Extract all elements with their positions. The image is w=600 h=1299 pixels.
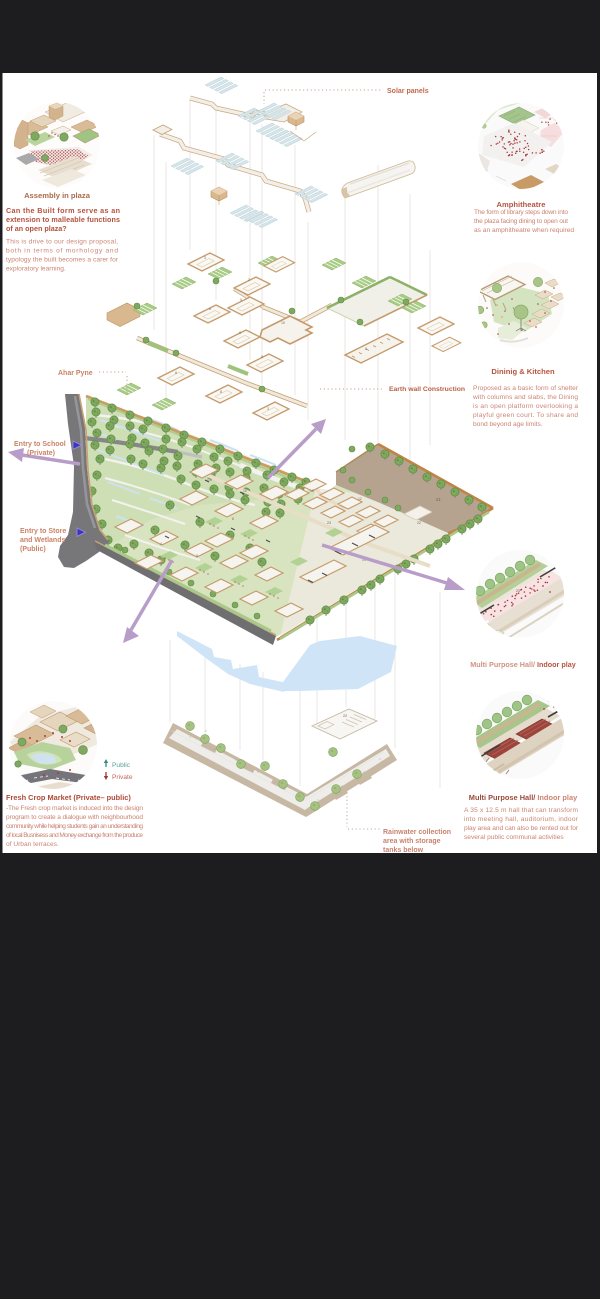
svg-text:3: 3 <box>267 407 269 411</box>
svg-text:Solar panels: Solar panels <box>387 88 429 95</box>
svg-text:8: 8 <box>365 347 367 351</box>
svg-text:Entry to Store: Entry to Store <box>20 528 66 535</box>
svg-text:(Private): (Private) <box>27 450 55 457</box>
svg-text:8: 8 <box>220 390 222 394</box>
svg-text:Assembly in plaza: Assembly in plaza <box>24 191 91 200</box>
svg-text:23: 23 <box>327 521 331 525</box>
svg-text:Entry to School: Entry to School <box>14 441 66 448</box>
svg-text:Can the Built form serve as an: Can the Built form serve as an <box>6 206 120 215</box>
svg-text:of local Busnisess and Money e: of local Busnisess and Money exchange fr… <box>6 832 143 839</box>
svg-text:play area and can also be rent: play area and can also be rented out for <box>464 825 579 832</box>
svg-text:4: 4 <box>160 542 162 546</box>
svg-text:Public: Public <box>112 762 131 769</box>
svg-text:Multi Purpose Hall/ Indoor pla: Multi Purpose Hall/ Indoor play <box>469 793 578 802</box>
svg-text:Multi Purpose Hall/ Indoor pla: Multi Purpose Hall/ Indoor play <box>470 660 575 669</box>
svg-text:playful green court. To sh: playful green court. To share and <box>473 412 578 419</box>
svg-text:and Wetlands: and Wetlands <box>20 537 65 544</box>
svg-text:Rainwater collection: Rainwater collection <box>383 829 451 836</box>
svg-text:(Public): (Public) <box>20 546 46 553</box>
svg-text:8: 8 <box>196 554 198 558</box>
svg-text:This is drive to our design pr: This is drive to our design proposal, <box>6 239 118 246</box>
svg-text:Private: Private <box>112 774 133 781</box>
svg-text:A 35 x 12.5 m hall that can tr: A 35 x 12.5 m hall that can transform <box>464 807 579 814</box>
svg-text:12: 12 <box>358 497 362 501</box>
svg-text:Fresh Crop Market (Private– pu: Fresh Crop Market (Private– public) <box>6 793 131 802</box>
svg-text:22: 22 <box>417 521 421 525</box>
svg-text:the plaza facing dining to ope: the plaza facing dining to open out <box>474 218 568 225</box>
svg-text:8: 8 <box>232 517 234 521</box>
svg-text:Earth wall Construction: Earth wall Construction <box>389 386 465 393</box>
svg-text:23: 23 <box>516 589 520 593</box>
svg-text:typology the built becomes a c: typology the built becomes a carer for <box>6 257 119 264</box>
svg-text:exploratory learning.: exploratory learning. <box>6 266 66 273</box>
svg-text:several public communal activi: several public communal activities <box>464 834 564 841</box>
svg-text:both in terms of morhology: both in terms of morhology and <box>6 248 118 255</box>
svg-text:16: 16 <box>243 489 247 493</box>
svg-text:8: 8 <box>261 355 263 359</box>
svg-text:extension to malleable functio: extension to malleable functions <box>6 215 120 224</box>
svg-text:The form of library steps dow: The form of library steps down into <box>474 209 568 216</box>
svg-text:21: 21 <box>436 497 441 502</box>
svg-text:18: 18 <box>310 489 314 493</box>
svg-text:10: 10 <box>281 321 285 325</box>
svg-text:tanks below: tanks below <box>383 847 424 854</box>
svg-text:5: 5 <box>240 298 242 302</box>
svg-text:of Urban terraces.: of Urban terraces. <box>6 841 59 848</box>
svg-text:of an open plaza?: of an open plaza? <box>6 224 67 233</box>
svg-text:community while helping studen: community while helping students gain an… <box>6 823 143 830</box>
svg-text:Dininig & Kitchen: Dininig & Kitchen <box>491 367 555 376</box>
svg-text:program to create a dialog: program to create a dialogue with neighb… <box>6 814 143 821</box>
svg-text:Amphitheatre: Amphitheatre <box>497 200 546 209</box>
svg-text:Proposed as a basic form of sh: Proposed as a basic form of shelter <box>473 385 579 392</box>
svg-text:into meeting hall, auditori: into meeting hall, auditorium, indoor <box>464 816 579 823</box>
svg-text:with columns and slabs, the Di: with columns and slabs, the Dining <box>472 394 578 401</box>
svg-text:22: 22 <box>343 714 347 718</box>
svg-text:is an open platform overlo: is an open platform overlooking a <box>473 403 578 410</box>
svg-text:3: 3 <box>204 256 206 260</box>
svg-text:-The Fresh crop market is: -The Fresh crop market is induced into t… <box>6 805 143 812</box>
svg-text:8: 8 <box>239 331 241 335</box>
svg-text:area with storage: area with storage <box>383 838 441 845</box>
svg-text:3: 3 <box>248 278 250 282</box>
svg-text:bond beyond age limits.: bond beyond age limits. <box>473 421 543 428</box>
svg-text:as an amphitheatre when requir: as an amphitheatre when required <box>474 227 574 234</box>
svg-text:8: 8 <box>175 371 177 375</box>
svg-text:Ahar Pyne: Ahar Pyne <box>58 370 93 377</box>
svg-text:6: 6 <box>209 307 211 311</box>
